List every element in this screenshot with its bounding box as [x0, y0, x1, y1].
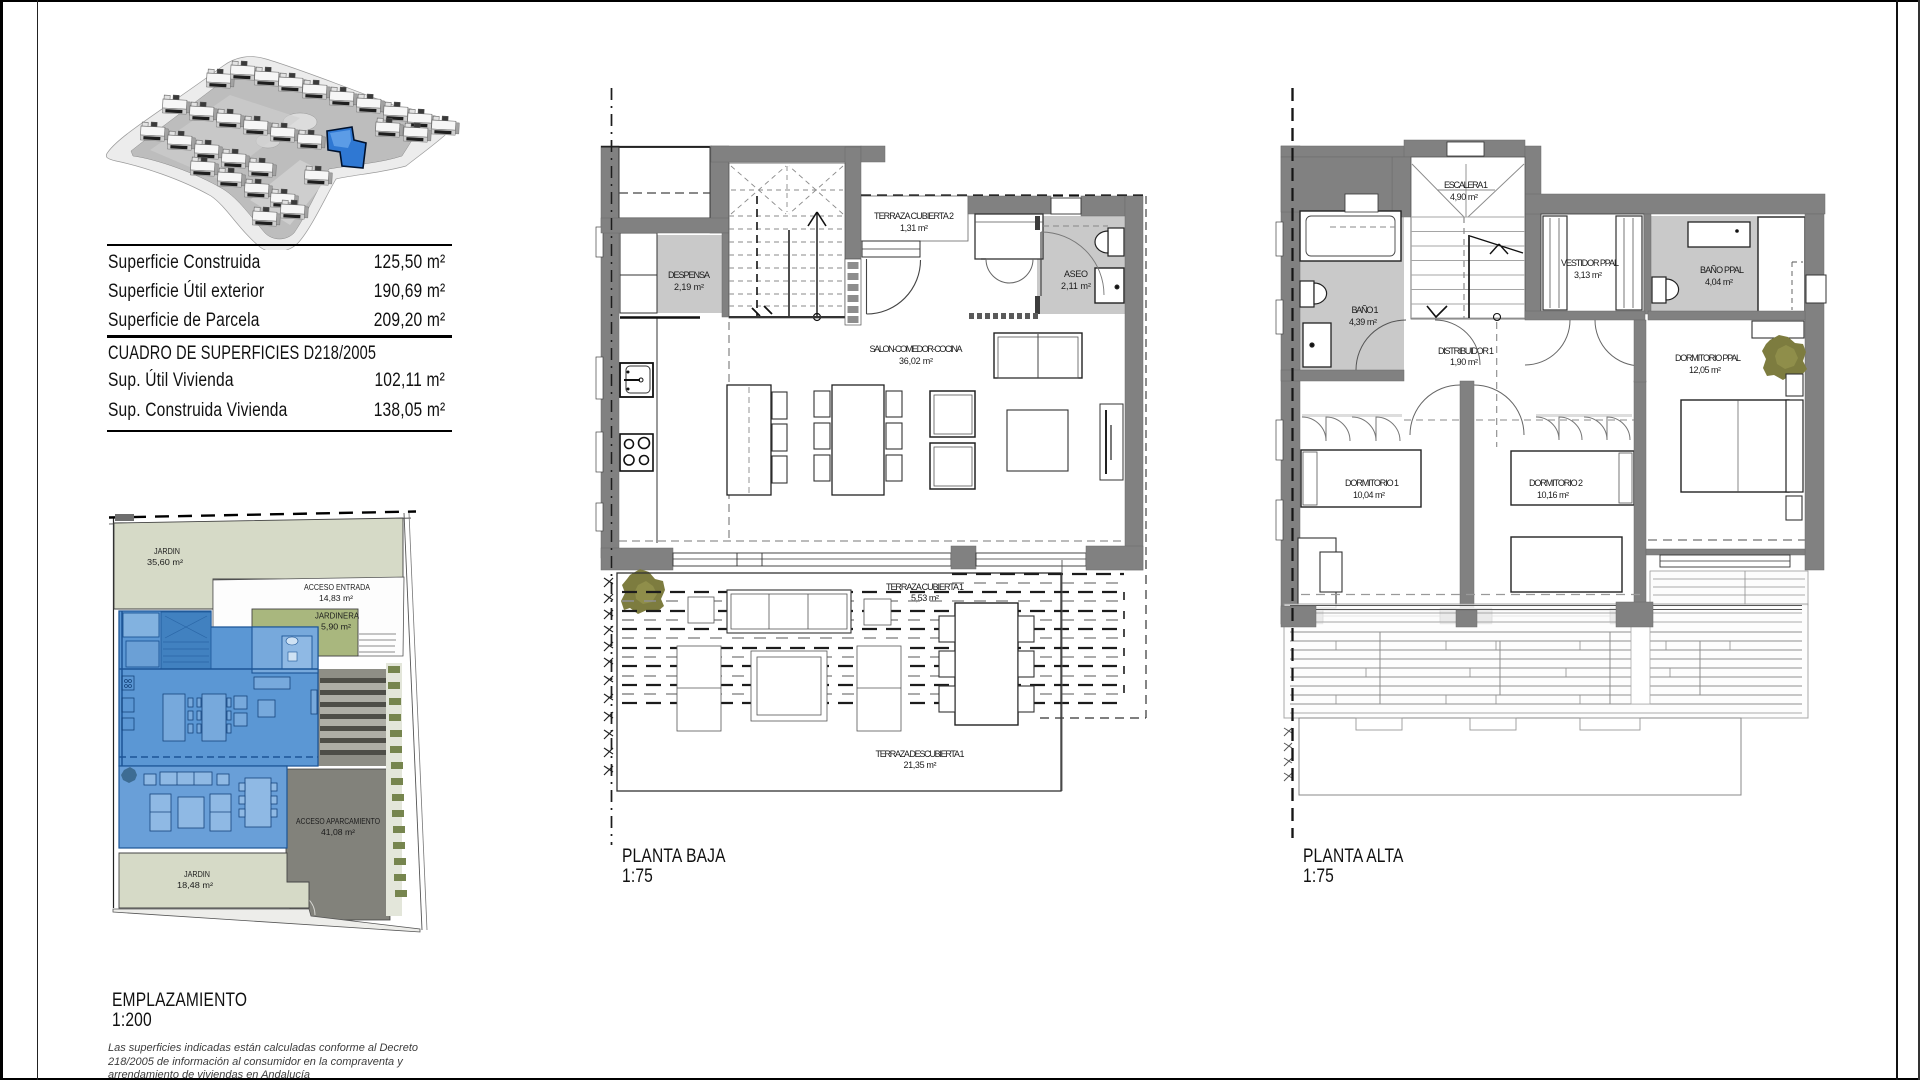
svg-text:18,48 m²: 18,48 m²: [177, 881, 213, 890]
svg-text:DORMITORIO 2: DORMITORIO 2: [1529, 478, 1583, 488]
svg-text:ASEO: ASEO: [1064, 269, 1088, 279]
svg-text:4,39 m²: 4,39 m²: [1349, 317, 1377, 327]
svg-text:14,83 m²: 14,83 m²: [319, 594, 353, 603]
svg-text:10,04 m²: 10,04 m²: [1353, 490, 1385, 500]
svg-text:21,35 m²: 21,35 m²: [904, 760, 937, 770]
svg-text:ESCALERA 1: ESCALERA 1: [1444, 180, 1488, 190]
svg-text:2,11 m²: 2,11 m²: [1061, 281, 1091, 291]
svg-text:DISTRIBUIDOR 1: DISTRIBUIDOR 1: [1438, 346, 1494, 356]
svg-text:12,05 m²: 12,05 m²: [1689, 365, 1721, 375]
svg-text:BAÑO PPAL: BAÑO PPAL: [1700, 265, 1744, 275]
svg-text:3,13 m²: 3,13 m²: [1574, 270, 1602, 280]
svg-text:VESTIDOR PPAL: VESTIDOR PPAL: [1561, 258, 1619, 268]
svg-text:4,04 m²: 4,04 m²: [1705, 277, 1733, 287]
svg-text:10,16 m²: 10,16 m²: [1537, 490, 1569, 500]
svg-text:JARDINERA: JARDINERA: [315, 612, 360, 621]
svg-text:TERRAZA CUBIERTA 2: TERRAZA CUBIERTA 2: [874, 211, 954, 221]
svg-text:36,02 m²: 36,02 m²: [899, 356, 933, 366]
svg-text:1,31 m²: 1,31 m²: [900, 223, 928, 233]
svg-text:TERRAZA DESCUBIERTA 1: TERRAZA DESCUBIERTA 1: [876, 749, 965, 759]
svg-text:4,90 m²: 4,90 m²: [1450, 192, 1478, 202]
svg-text:ACCESO APARCAMIENTO: ACCESO APARCAMIENTO: [296, 817, 380, 826]
svg-text:1,90 m²: 1,90 m²: [1450, 357, 1478, 367]
svg-text:BAÑO 1: BAÑO 1: [1352, 305, 1379, 315]
svg-text:SALON-COMEDOR-COCINA: SALON-COMEDOR-COCINA: [870, 344, 963, 354]
svg-text:2,19 m²: 2,19 m²: [674, 282, 704, 292]
svg-text:JARDIN: JARDIN: [184, 870, 210, 879]
svg-text:5,90 m²: 5,90 m²: [321, 623, 351, 632]
svg-text:ACCESO ENTRADA: ACCESO ENTRADA: [304, 583, 370, 592]
svg-text:DESPENSA: DESPENSA: [668, 270, 710, 280]
svg-text:DORMITORIO 1: DORMITORIO 1: [1345, 478, 1399, 488]
svg-text:JARDIN: JARDIN: [154, 547, 180, 556]
svg-text:41,08 m²: 41,08 m²: [321, 828, 355, 837]
svg-text:DORMITORIO PPAL: DORMITORIO PPAL: [1675, 353, 1741, 363]
svg-text:35,60 m²: 35,60 m²: [147, 558, 183, 567]
